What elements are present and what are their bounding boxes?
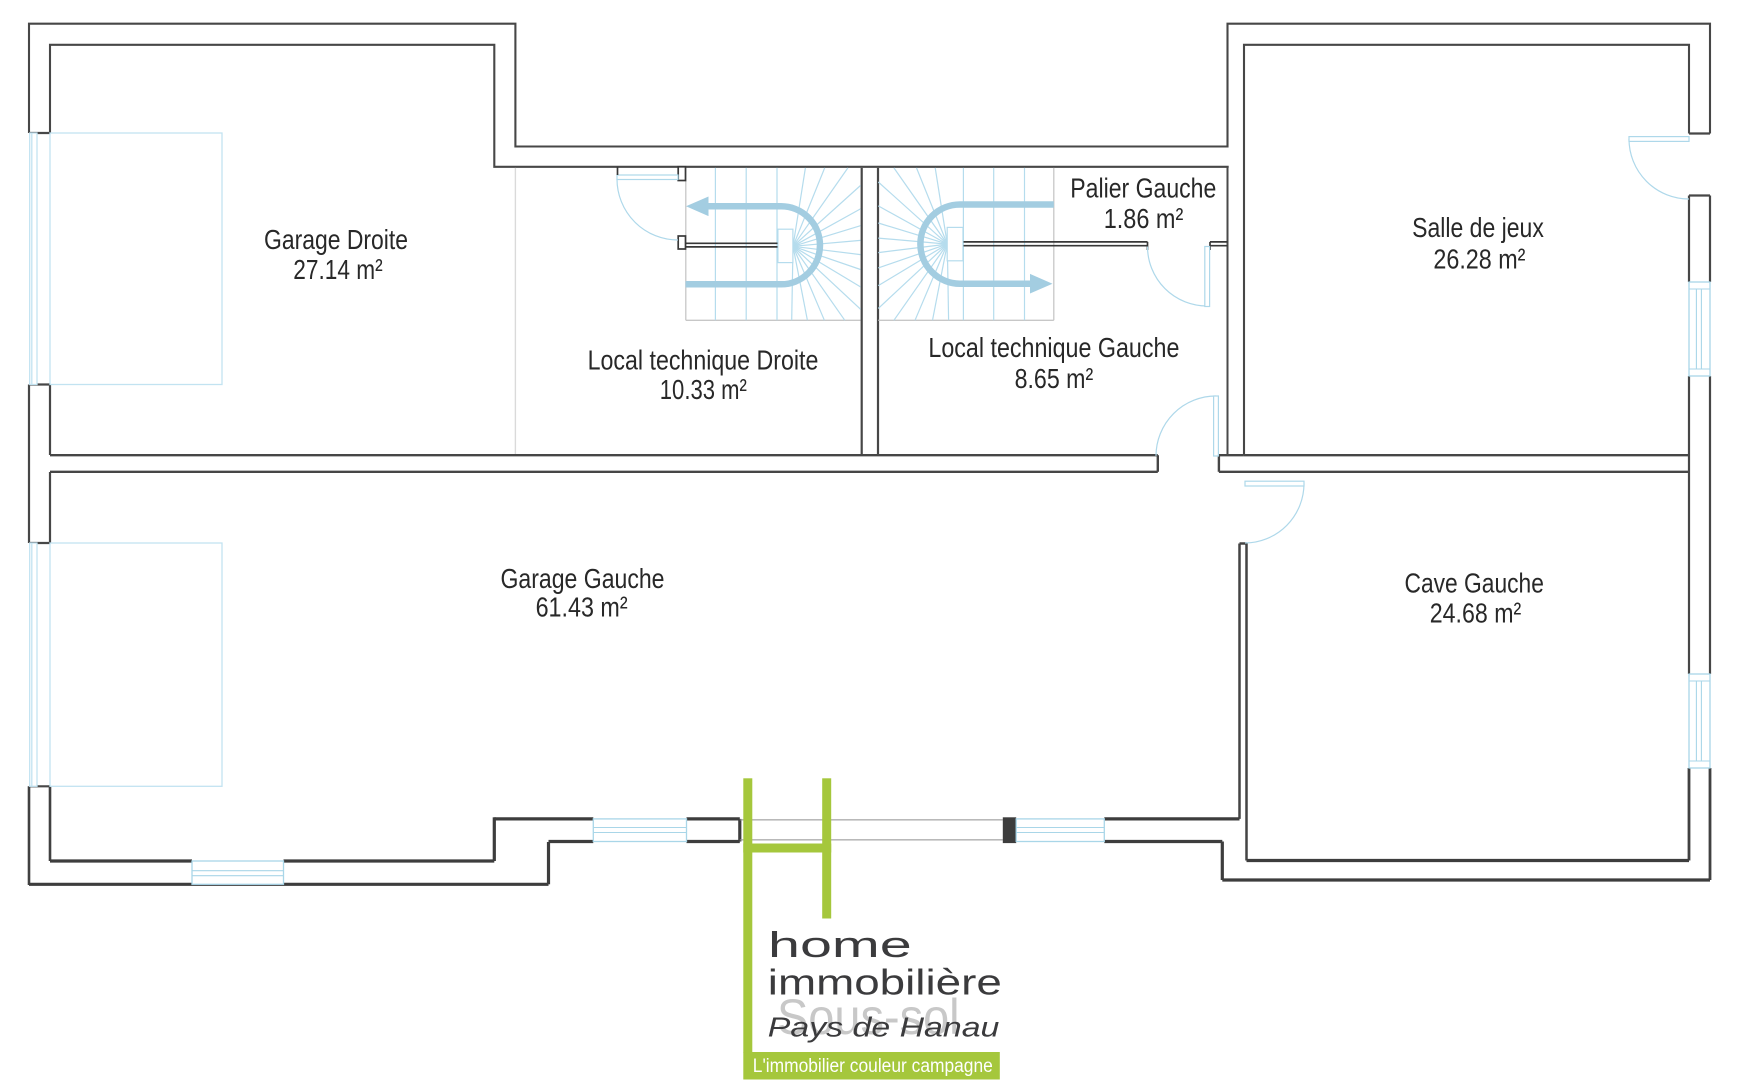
- svg-text:Garage Droite: Garage Droite: [264, 224, 408, 255]
- svg-text:27.14 m²: 27.14 m²: [293, 254, 382, 285]
- svg-text:home: home: [768, 924, 912, 965]
- svg-text:Local technique Droite: Local technique Droite: [588, 345, 819, 376]
- svg-text:8.65 m²: 8.65 m²: [1015, 363, 1094, 394]
- svg-text:1.86 m²: 1.86 m²: [1104, 203, 1184, 234]
- svg-text:L'immobilier couleur campagne: L'immobilier couleur campagne: [753, 1056, 993, 1077]
- svg-text:Garage Gauche: Garage Gauche: [501, 563, 665, 594]
- svg-text:Cave Gauche: Cave Gauche: [1405, 568, 1544, 599]
- svg-text:10.33 m²: 10.33 m²: [660, 374, 747, 405]
- svg-text:24.68 m²: 24.68 m²: [1430, 598, 1521, 629]
- svg-text:Salle de jeux: Salle de jeux: [1412, 212, 1544, 243]
- svg-text:Palier Gauche: Palier Gauche: [1070, 173, 1216, 204]
- svg-text:immobilière: immobilière: [768, 961, 1002, 1002]
- svg-text:Pays de Hanau: Pays de Hanau: [768, 1012, 1000, 1043]
- svg-text:26.28 m²: 26.28 m²: [1433, 244, 1525, 275]
- svg-text:61.43 m²: 61.43 m²: [536, 592, 628, 623]
- svg-text:Local technique Gauche: Local technique Gauche: [928, 332, 1179, 363]
